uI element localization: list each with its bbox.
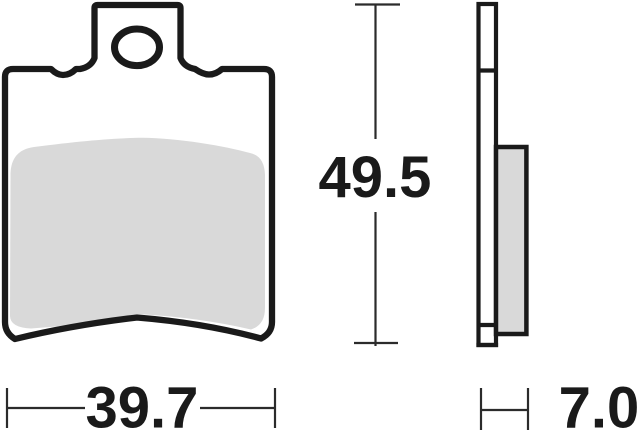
svg-text:7.0: 7.0 xyxy=(559,376,640,431)
svg-text:49.5: 49.5 xyxy=(319,145,432,210)
svg-text:39.7: 39.7 xyxy=(86,376,199,431)
